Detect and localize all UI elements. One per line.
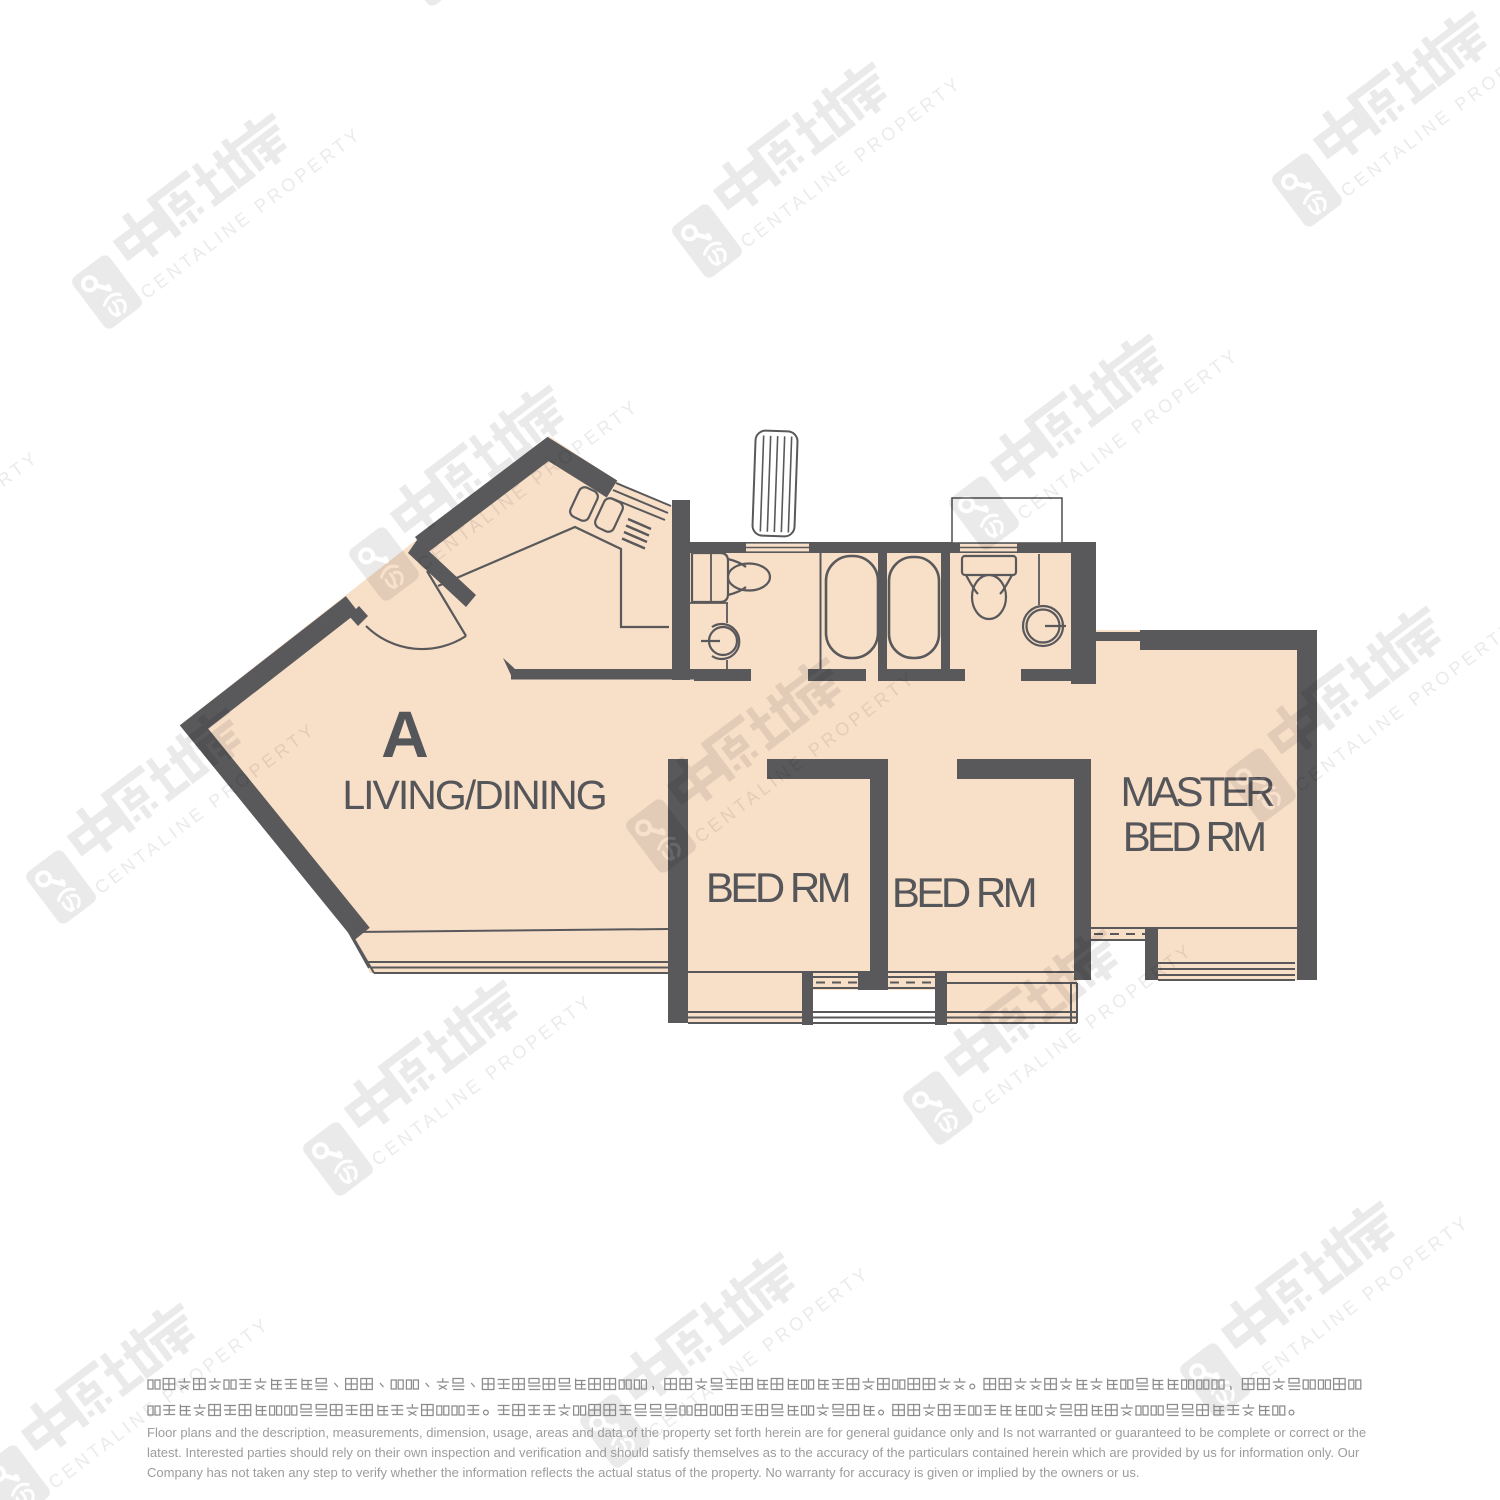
- svg-text:latest. Interested parties sho: latest. Interested parties should rely o…: [147, 1445, 1360, 1460]
- svg-text:BED RM: BED RM: [706, 864, 849, 911]
- svg-text:Floor plans and the descriptio: Floor plans and the description, measure…: [147, 1425, 1366, 1440]
- svg-text:Company has not taken any step: Company has not taken any step to verify…: [147, 1465, 1140, 1480]
- svg-text:BED RM: BED RM: [892, 869, 1035, 916]
- svg-text:BED RM: BED RM: [1123, 813, 1264, 860]
- svg-text:LIVING/DINING: LIVING/DINING: [342, 772, 605, 818]
- svg-text:A: A: [381, 697, 429, 771]
